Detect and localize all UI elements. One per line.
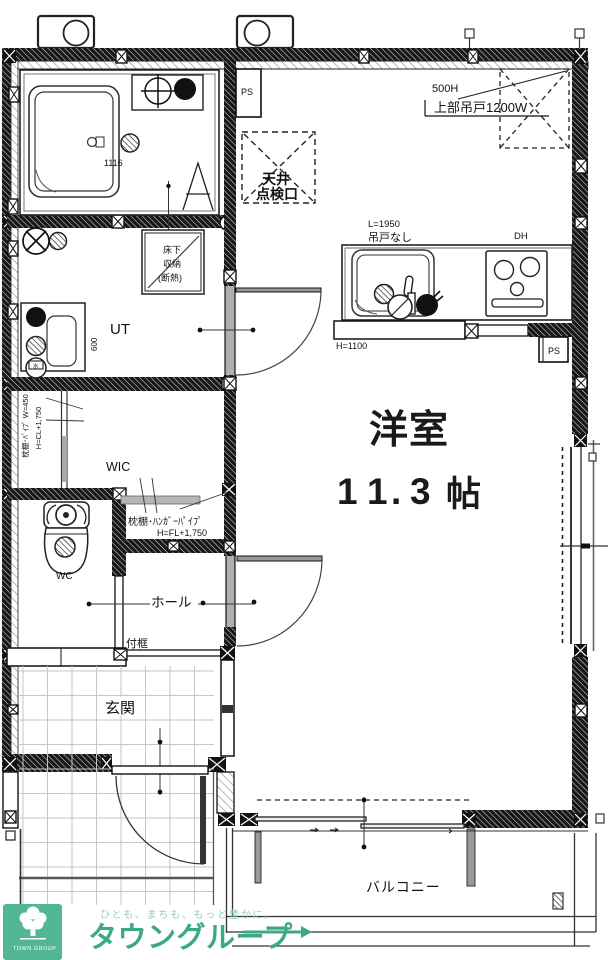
- svg-text:点検口: 点検口: [256, 186, 298, 202]
- svg-text:H=CL+1,750: H=CL+1,750: [34, 407, 43, 450]
- svg-text:WC: WC: [56, 571, 73, 582]
- svg-text:DH: DH: [514, 231, 528, 242]
- svg-text:UT: UT: [110, 321, 130, 338]
- svg-text:1116: 1116: [104, 158, 123, 168]
- svg-text:付框: 付框: [126, 637, 148, 650]
- svg-text:吊戸なし: 吊戸なし: [368, 231, 412, 244]
- svg-text:H=FL+1,750: H=FL+1,750: [157, 528, 207, 538]
- svg-text:1: 1: [367, 471, 388, 512]
- svg-text:洋室: 洋室: [369, 409, 449, 452]
- svg-text:ひとも、まちも、もっと豊かに。: ひとも、まちも、もっと豊かに。: [100, 908, 276, 921]
- svg-text:収納: 収納: [163, 258, 181, 269]
- svg-text:水: 水: [33, 362, 39, 370]
- svg-text:L=1950: L=1950: [368, 219, 400, 230]
- svg-text:.: .: [391, 471, 401, 512]
- svg-text:床下: 床下: [163, 244, 181, 255]
- svg-text:バルコニー: バルコニー: [366, 879, 441, 895]
- svg-text:H=1100: H=1100: [336, 341, 367, 351]
- svg-text:TOWN GROUP: TOWN GROUP: [13, 946, 56, 952]
- svg-text:500H: 500H: [432, 83, 458, 95]
- svg-text:(断熱): (断熱): [158, 272, 182, 283]
- svg-text:WIC: WIC: [106, 460, 130, 474]
- svg-text:1: 1: [337, 471, 358, 512]
- svg-text:PS: PS: [241, 87, 253, 97]
- svg-text:タウングループ: タウングループ: [88, 921, 293, 954]
- svg-text:帖: 帖: [446, 475, 481, 514]
- svg-text:PS: PS: [548, 346, 560, 356]
- svg-text:3: 3: [410, 471, 431, 512]
- svg-text:600: 600: [90, 337, 99, 351]
- svg-text:ホール: ホール: [151, 595, 192, 610]
- svg-text:枕棚･ﾊﾝｶﾞｰﾊﾟｲﾌﾟ: 枕棚･ﾊﾝｶﾞｰﾊﾟｲﾌﾟ: [128, 515, 203, 528]
- svg-text:枕棚･ﾊﾟｲﾌﾟ W=450: 枕棚･ﾊﾟｲﾌﾟ W=450: [20, 394, 30, 458]
- svg-text:玄関: 玄関: [105, 700, 135, 717]
- svg-text:天井: 天井: [262, 171, 290, 187]
- svg-text:上部吊戸1200W: 上部吊戸1200W: [434, 100, 528, 115]
